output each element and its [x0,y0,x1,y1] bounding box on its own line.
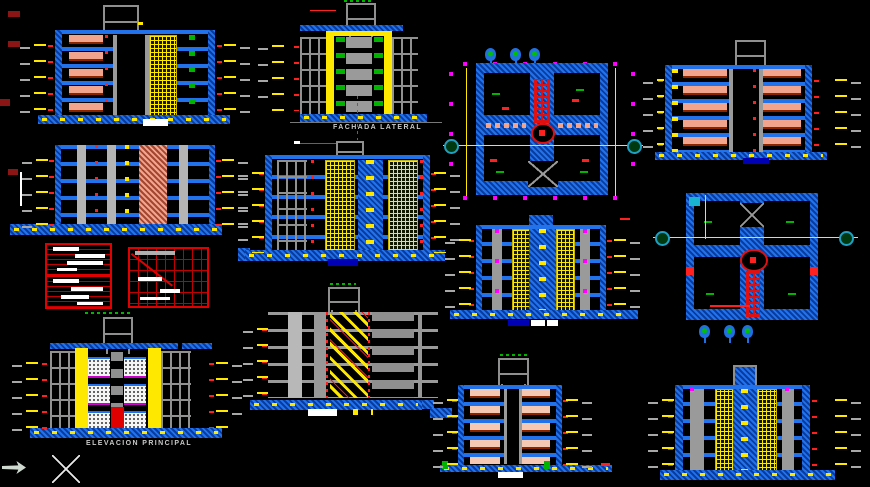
base-line [290,122,442,123]
building-body [55,145,215,233]
window-symbol [689,197,700,206]
building-body [265,155,430,258]
red-markers [311,160,314,253]
interior-windows [757,69,801,153]
red-markers [95,145,98,233]
dimension-ticks-left [12,348,48,438]
plan-walls [476,63,608,195]
drawing-label-bar [508,320,529,326]
glazing-grid [325,160,355,255]
drawing-section-center[interactable] [445,213,640,331]
wall-hatch [675,385,683,475]
yellow-symbols [353,409,373,415]
table-text-bar [61,295,89,299]
facade-frame-left [75,348,88,438]
room-tag [706,293,714,295]
dimension-ticks-left [20,30,54,122]
room [764,257,810,309]
balcony [124,384,146,405]
interior-windows [520,389,550,464]
drawing-fachada-lateral[interactable]: FACHADA LATERAL [250,0,435,140]
leader-line [310,10,336,11]
dimension-ticks-left [648,385,674,475]
ground-line [660,470,835,480]
glazing-grid [149,35,177,122]
red-markers [753,69,756,153]
drawing-finish-schedule-tables[interactable] [45,242,210,317]
drawing-title: ELEVACION PRINCIPAL [86,440,192,447]
ground-detail [659,154,823,157]
red-arrow [710,305,750,307]
column-markers-right [631,72,635,192]
green-tick [103,312,131,314]
ground-line [300,114,427,122]
plant-symbols [374,37,383,117]
drawing-label-bar [547,320,558,326]
wall-hatch [458,385,464,468]
x-crosshair-icon [52,455,80,483]
yellow-markers [125,145,129,233]
glazing-grid [388,160,418,255]
column-markers [495,229,499,314]
red-marker [601,463,610,466]
red-marker [810,267,818,275]
dimension-ticks-left [445,225,475,315]
schedule-table [45,243,112,276]
glazing-grid [556,229,575,316]
plant-symbols [189,35,195,120]
room [554,73,600,115]
room [764,201,810,245]
column [580,229,590,314]
column-marker [690,387,694,391]
interior-detail [558,123,598,128]
table-text-bar [53,279,79,283]
column [782,389,794,471]
roof-tank [498,358,529,386]
leader-arrow [138,22,150,25]
column [107,145,116,233]
red-markers [105,35,108,120]
building-body [268,312,438,398]
building-body [458,385,562,468]
table-text-bar [77,302,103,305]
table-text-bar [67,261,103,265]
wall-hatch [55,145,61,233]
room-tag [786,221,794,223]
door-swing-symbol [740,249,768,272]
dimension-ticks-left [258,31,300,111]
roof-tank [328,287,360,312]
green-marker [544,461,550,469]
tree-symbol [485,48,496,61]
dimension-ticks-left [22,145,55,230]
drawing-section-bottom-center[interactable] [430,350,615,482]
red-marker [686,267,694,275]
wall-hatch [55,30,62,122]
revision-tag [8,41,20,47]
dimension-ticks-left [433,385,458,468]
drawing-building-section-upper-left[interactable] [20,3,250,130]
tree-symbol [724,325,735,338]
wall-hatch [802,385,810,475]
yellow-markers [672,69,678,153]
balcony [124,357,146,378]
section-marker [655,231,670,246]
ground-detail [34,431,218,434]
table-text-bar [160,289,180,293]
wall-hatch [208,30,215,122]
table-text-bar [71,287,103,291]
leader-arrowhead [294,141,300,144]
column-markers-left [449,72,453,192]
door-swing-symbol [531,123,555,144]
wall [314,312,326,398]
elevator-shaft [528,161,558,187]
table-text-bar [75,254,105,258]
wall [288,312,302,398]
stair-core [529,229,556,314]
room-tag [576,89,584,91]
stair-core-hatch [139,145,167,233]
drawing-label-bar [143,119,168,126]
section-arrows [741,389,748,471]
stair-plan [746,271,760,317]
side-wing-windows [392,37,418,117]
ground-detail [304,116,423,119]
red-marker [502,107,509,110]
room [694,201,740,245]
model-space-canvas[interactable]: ELEVACION PRINCIPAL FACHADA LATERAL [0,0,870,487]
center-axis-line [357,96,358,140]
interior-windows [683,69,727,153]
green-tick [500,354,528,356]
stair-plan [534,79,550,123]
stair-core [358,160,383,253]
drawing-building-section-upper-right[interactable] [643,38,863,166]
selection-arrow-icon [2,461,26,474]
interior-windows [470,389,500,464]
drawing-floor-plan-right[interactable] [653,183,858,355]
table-header-bar [135,251,175,255]
leader-line [300,143,340,144]
balcony [88,357,110,378]
dimension-ticks-right [208,348,242,428]
table-text-bar [53,247,79,251]
frame-left [326,31,334,118]
stair-windows [111,352,123,407]
red-marker [490,159,497,162]
column-marker [785,387,789,391]
axis-line [368,312,370,398]
elevator-core [504,389,522,464]
tree-symbol [529,48,540,61]
red-marker [572,99,579,102]
red-marker [582,159,589,162]
interior-windows [69,35,103,120]
dimension-line [615,68,616,198]
tree-symbol [510,48,521,61]
tree-symbol [699,325,710,338]
elevator-core [113,35,149,120]
dimension-ticks-right [606,225,640,315]
room [554,135,600,181]
section-cut-line [443,145,643,146]
section-marker [627,139,642,154]
green-tick [330,283,356,285]
section-arrows [539,229,546,314]
roof-tank [735,40,766,67]
building-body [476,225,606,318]
wall-hatch [665,65,672,155]
landings [372,312,414,398]
stair-core [733,389,757,471]
drawing-floor-plan-upper[interactable] [443,44,643,209]
stair-windows [346,37,372,117]
column [77,145,86,233]
schedule-table [45,275,112,309]
dimension-ticks-right [811,385,861,475]
section-marker [444,139,459,154]
glazing-grid [715,389,735,473]
section-cut-line [653,237,858,238]
side-wing-windows [50,351,75,435]
drawing-label-bar [743,158,769,164]
interior-windows [277,160,307,253]
column [690,389,704,471]
ground-line [655,152,827,160]
ground-line [38,115,230,124]
room-tag [788,293,796,295]
drawing-elevacion-principal[interactable]: ELEVACION PRINCIPAL [12,312,244,452]
dimension-ticks-right [216,30,250,122]
tree-symbol [742,325,753,338]
facade-frame-right [148,348,161,438]
wall-hatch [805,65,812,155]
section-marker [839,231,854,246]
symbol-center [539,130,545,136]
dimension-line [705,195,706,239]
drawing-label-bar [498,472,523,478]
room-tag [580,171,588,173]
detail-table [128,247,209,308]
interior-detail [486,123,526,128]
stair-flights [330,312,368,398]
column [179,145,188,233]
table-text-bar [138,277,162,281]
frame-right [384,31,392,118]
column-markers [583,229,587,314]
elevator-shaft [740,203,764,227]
drawing-label-bar [308,409,337,416]
drawing-building-section-mid-left[interactable] [10,140,250,240]
ground-detail [664,473,831,476]
dimension-ticks-left [243,314,268,400]
section-arrows [366,160,374,253]
symbol-center [750,257,756,263]
wall-hatch [265,155,272,258]
green-tick [344,0,372,2]
drawing-title: FACHADA LATERAL [333,124,422,131]
glazing-grid [757,389,777,473]
building-body [55,30,215,122]
room [484,135,530,181]
drawing-label-bar [531,320,545,326]
revision-tag [0,99,10,106]
frame-top [326,31,392,36]
red-markers [420,160,423,253]
building-body [665,65,812,155]
column-markers-bottom [463,196,633,200]
room-tag [492,93,500,95]
ground-line [30,428,222,438]
column [418,312,422,398]
revision-tag [8,11,20,17]
ground-detail [254,403,418,406]
diagonal-line [131,253,173,287]
plant-symbols [336,37,345,117]
ground-detail [42,118,226,121]
table-text-bar [140,297,170,300]
dimension-ticks-left [643,65,664,155]
axis-line [326,312,328,398]
wall-hatch [423,155,430,258]
building-body [675,385,810,475]
elevator-core [729,69,763,153]
balcony [88,384,110,405]
table-text-bar [57,268,77,271]
side-wing-windows [300,37,326,117]
drawing-label-bar [328,259,358,266]
drawing-section-center-left[interactable] [238,138,460,268]
leader-line [620,218,630,220]
drawing-section-bottom-right[interactable] [648,360,863,487]
dimension-ticks-left [238,158,265,253]
dimension-ticks-right [813,65,861,155]
wall-hatch [476,225,482,318]
room [694,257,740,309]
side-wing-windows [161,351,191,435]
column [492,229,502,314]
room-tag [496,171,504,173]
ground-detail [249,254,441,257]
dimension-line [466,68,467,198]
dimension-ticks-right [562,385,592,468]
